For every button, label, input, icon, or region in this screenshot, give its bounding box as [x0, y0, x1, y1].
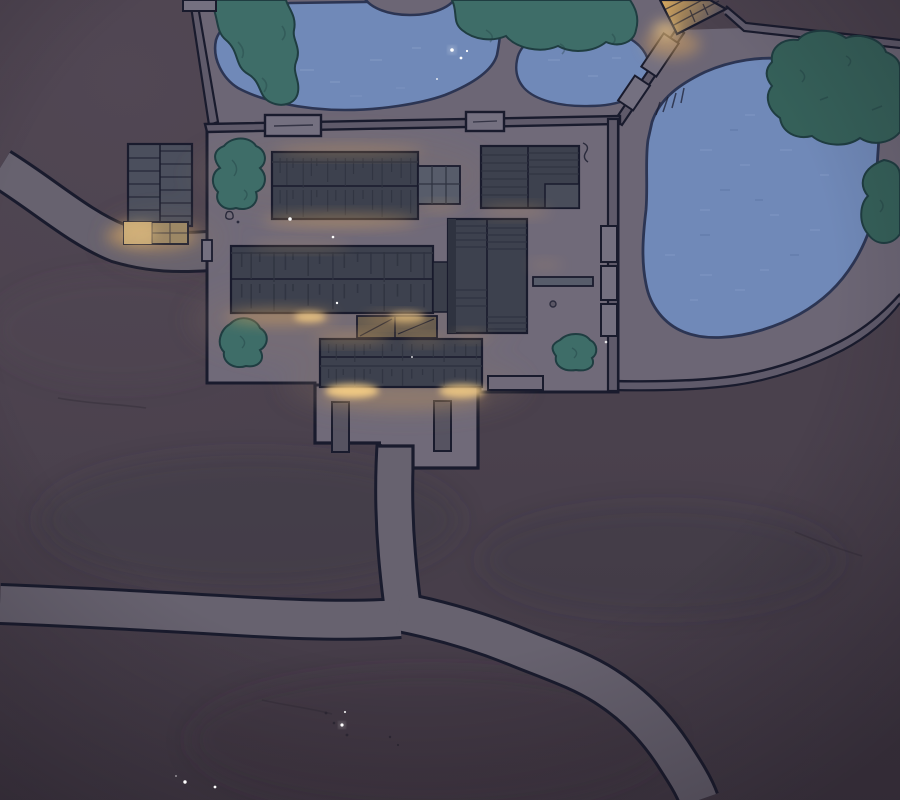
scene-canvas — [0, 0, 900, 800]
estate-night-map: Night-time aerial (top-down) illustrated… — [0, 0, 900, 800]
vignette — [0, 0, 900, 800]
